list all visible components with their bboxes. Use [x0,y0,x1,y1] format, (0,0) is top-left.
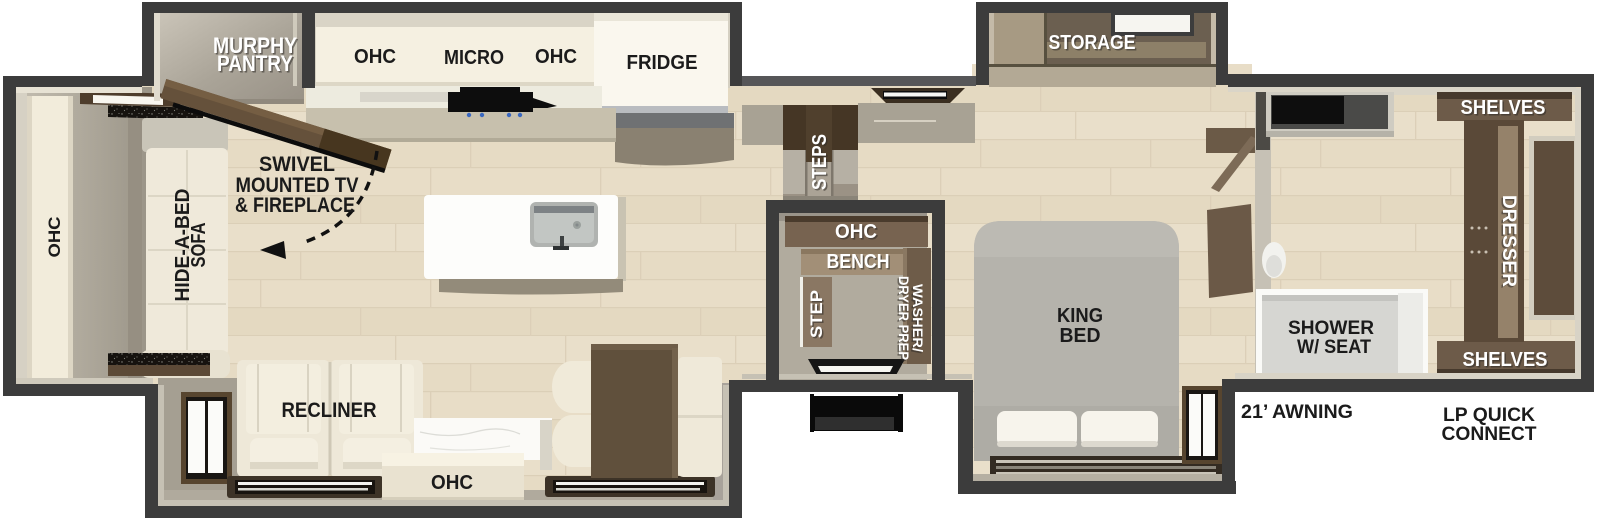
svg-text:DRYER PREP: DRYER PREP [896,276,912,360]
svg-text:W/ SEAT: W/ SEAT [1297,337,1371,358]
svg-text:21’ AWNING: 21’ AWNING [1241,402,1353,423]
svg-text:KING: KING [1057,305,1103,327]
svg-text:SHELVES: SHELVES [1461,97,1546,119]
svg-text:STEP: STEP [807,290,826,338]
svg-text:FRIDGE: FRIDGE [627,52,698,74]
svg-text:SHOWER: SHOWER [1288,318,1374,339]
svg-text:OHC: OHC [354,46,396,68]
svg-text:STEPS: STEPS [809,134,831,190]
svg-text:OHC: OHC [535,46,577,68]
svg-text:RECLINER: RECLINER [282,399,377,422]
svg-text:BED: BED [1060,325,1101,347]
svg-text:OHC: OHC [431,472,473,494]
svg-text:PANTRY: PANTRY [217,51,293,76]
svg-text:MICRO: MICRO [444,47,504,69]
svg-text:& FIREPLACE: & FIREPLACE [235,194,355,217]
svg-text:SWIVEL: SWIVEL [259,153,335,176]
svg-text:SHELVES: SHELVES [1463,349,1548,371]
svg-text:CONNECT: CONNECT [1442,424,1537,445]
svg-text:BENCH: BENCH [827,251,890,273]
svg-text:OHC: OHC [835,221,877,243]
svg-text:OHC: OHC [45,217,64,258]
svg-text:SOFA: SOFA [188,223,210,268]
svg-text:DRESSER: DRESSER [1498,195,1519,287]
svg-text:STORAGE: STORAGE [1049,32,1136,54]
svg-text:LP QUICK: LP QUICK [1443,405,1535,426]
